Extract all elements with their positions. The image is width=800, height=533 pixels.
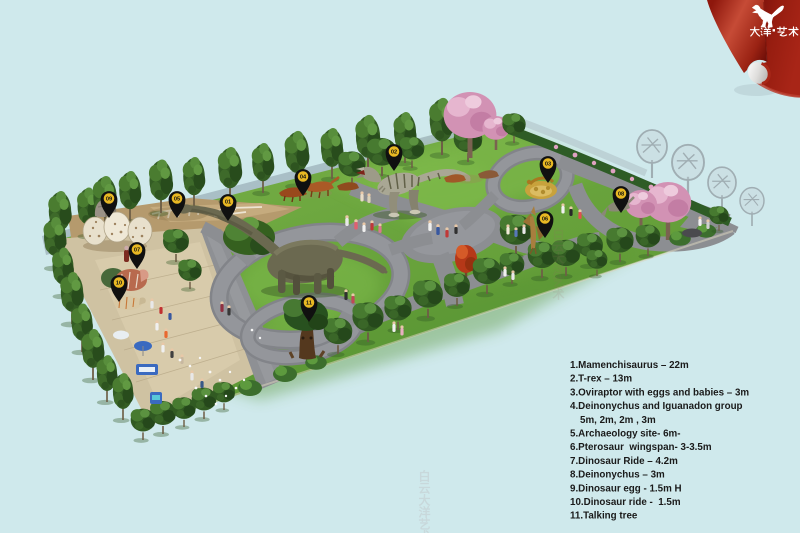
svg-text:11.Talking tree: 11.Talking tree — [570, 511, 638, 522]
svg-text:08: 08 — [618, 192, 624, 198]
svg-text:10: 10 — [116, 281, 122, 287]
svg-text:2.T-rex – 13m: 2.T-rex – 13m — [570, 374, 632, 385]
svg-text:10.Dinosaur ride - 1.5m: 10.Dinosaur ride - 1.5m — [570, 497, 681, 508]
svg-text:4.Deinonychus and Iguanadon gr: 4.Deinonychus and Iguanadon group — [570, 401, 743, 412]
svg-text:01: 01 — [225, 200, 231, 206]
svg-text:04: 04 — [300, 175, 307, 181]
svg-text:8.Deinonychus – 3m: 8.Deinonychus – 3m — [570, 470, 665, 481]
svg-text:7.Dinosaur Ride – 4.2m: 7.Dinosaur Ride – 4.2m — [570, 456, 678, 467]
svg-text:03: 03 — [545, 162, 551, 168]
svg-text:5m, 2m, 2m , 3m: 5m, 2m, 2m , 3m — [580, 415, 656, 426]
svg-text:07: 07 — [134, 248, 140, 254]
svg-text:白云大洋艺术: 白云大洋艺术 — [551, 227, 565, 301]
svg-text:06: 06 — [542, 217, 548, 223]
svg-text:5.Archaeology site- 6m-: 5.Archaeology site- 6m- — [570, 429, 681, 440]
svg-text:09: 09 — [106, 197, 112, 203]
svg-text:3.Oviraptor with eggs and babi: 3.Oviraptor with eggs and babies – 3m — [570, 387, 749, 398]
svg-text:02: 02 — [391, 150, 397, 156]
svg-text:白云大洋艺术: 白云大洋艺术 — [417, 469, 431, 533]
svg-text:6.Pterosaur wingspan- 3-3.5m: 6.Pterosaur wingspan- 3-3.5m — [570, 442, 712, 453]
svg-text:9.Dinosaur egg - 1.5m H: 9.Dinosaur egg - 1.5m H — [570, 483, 682, 494]
svg-text:11: 11 — [306, 301, 312, 307]
svg-text:1.Mamenchisaurus – 22m: 1.Mamenchisaurus – 22m — [570, 360, 689, 371]
svg-text:05: 05 — [174, 197, 180, 203]
